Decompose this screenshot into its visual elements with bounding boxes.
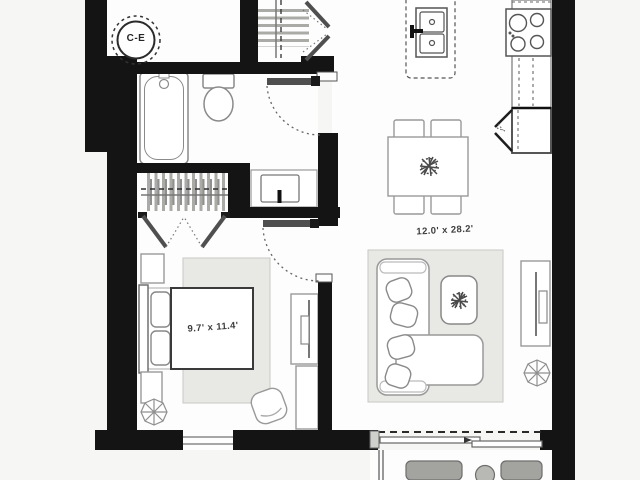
kitchen-island-double-sink xyxy=(406,0,455,78)
floor-plan: C-E 12.0' x 28.2' 9.7' x 11.4' xyxy=(0,0,640,480)
potted-plant-living xyxy=(524,360,550,386)
pillow xyxy=(151,331,170,365)
sliding-balcony-door xyxy=(370,431,542,448)
toilet xyxy=(203,74,234,121)
potted-plant-bedroom xyxy=(141,399,167,425)
pillow xyxy=(151,292,170,327)
water-heater-label: C-E xyxy=(116,33,156,44)
nightstand xyxy=(141,372,162,403)
desk-with-tv xyxy=(291,294,318,364)
vanity-sink xyxy=(251,170,317,207)
coffee-table-plant xyxy=(451,292,468,309)
nightstand xyxy=(141,254,164,283)
balcony-chair xyxy=(406,461,462,480)
coffee-table xyxy=(441,276,477,324)
dresser xyxy=(296,366,318,429)
window xyxy=(183,430,233,450)
floor-plan-drawing xyxy=(0,0,640,480)
balcony-chair xyxy=(501,461,542,480)
balcony-table xyxy=(476,466,495,480)
media-console xyxy=(521,261,550,346)
headboard xyxy=(139,285,148,373)
stove-cooktop xyxy=(506,9,551,56)
faucet xyxy=(278,190,282,203)
linen-closet-rod xyxy=(141,189,231,195)
bathtub xyxy=(140,72,188,164)
